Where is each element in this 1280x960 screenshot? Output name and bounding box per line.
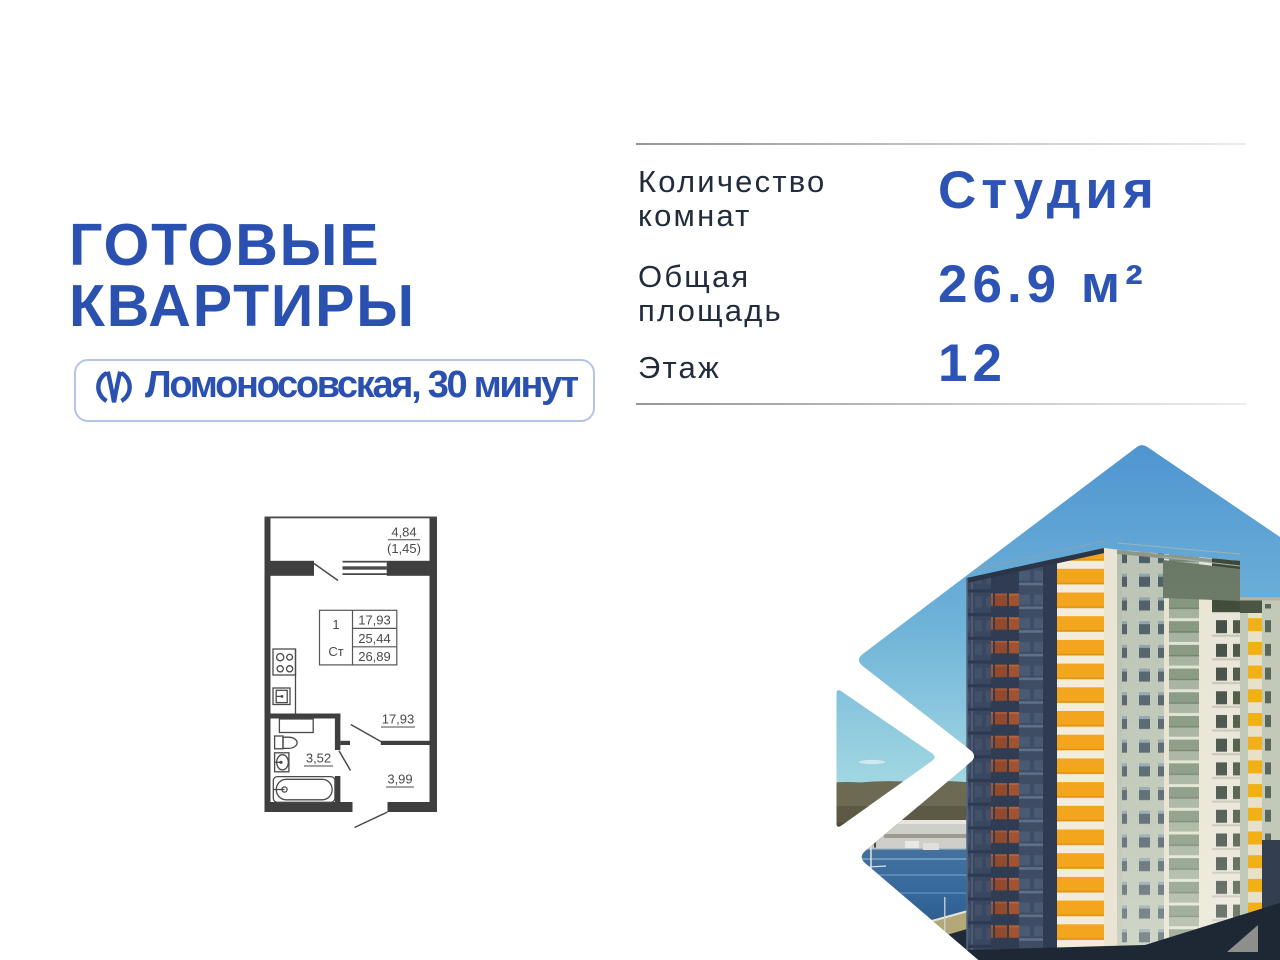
svg-text:1: 1 — [332, 617, 339, 632]
svg-text:17,93: 17,93 — [382, 712, 415, 727]
svg-text:3,99: 3,99 — [387, 772, 412, 787]
svg-text:3,52: 3,52 — [306, 751, 331, 766]
svg-text:4,84: 4,84 — [391, 525, 416, 540]
svg-text:26,89: 26,89 — [358, 649, 391, 664]
svg-text:17,93: 17,93 — [358, 613, 391, 628]
svg-text:Ст: Ст — [328, 644, 343, 659]
svg-text:25,44: 25,44 — [358, 631, 391, 646]
svg-text:(1,45): (1,45) — [387, 541, 421, 556]
